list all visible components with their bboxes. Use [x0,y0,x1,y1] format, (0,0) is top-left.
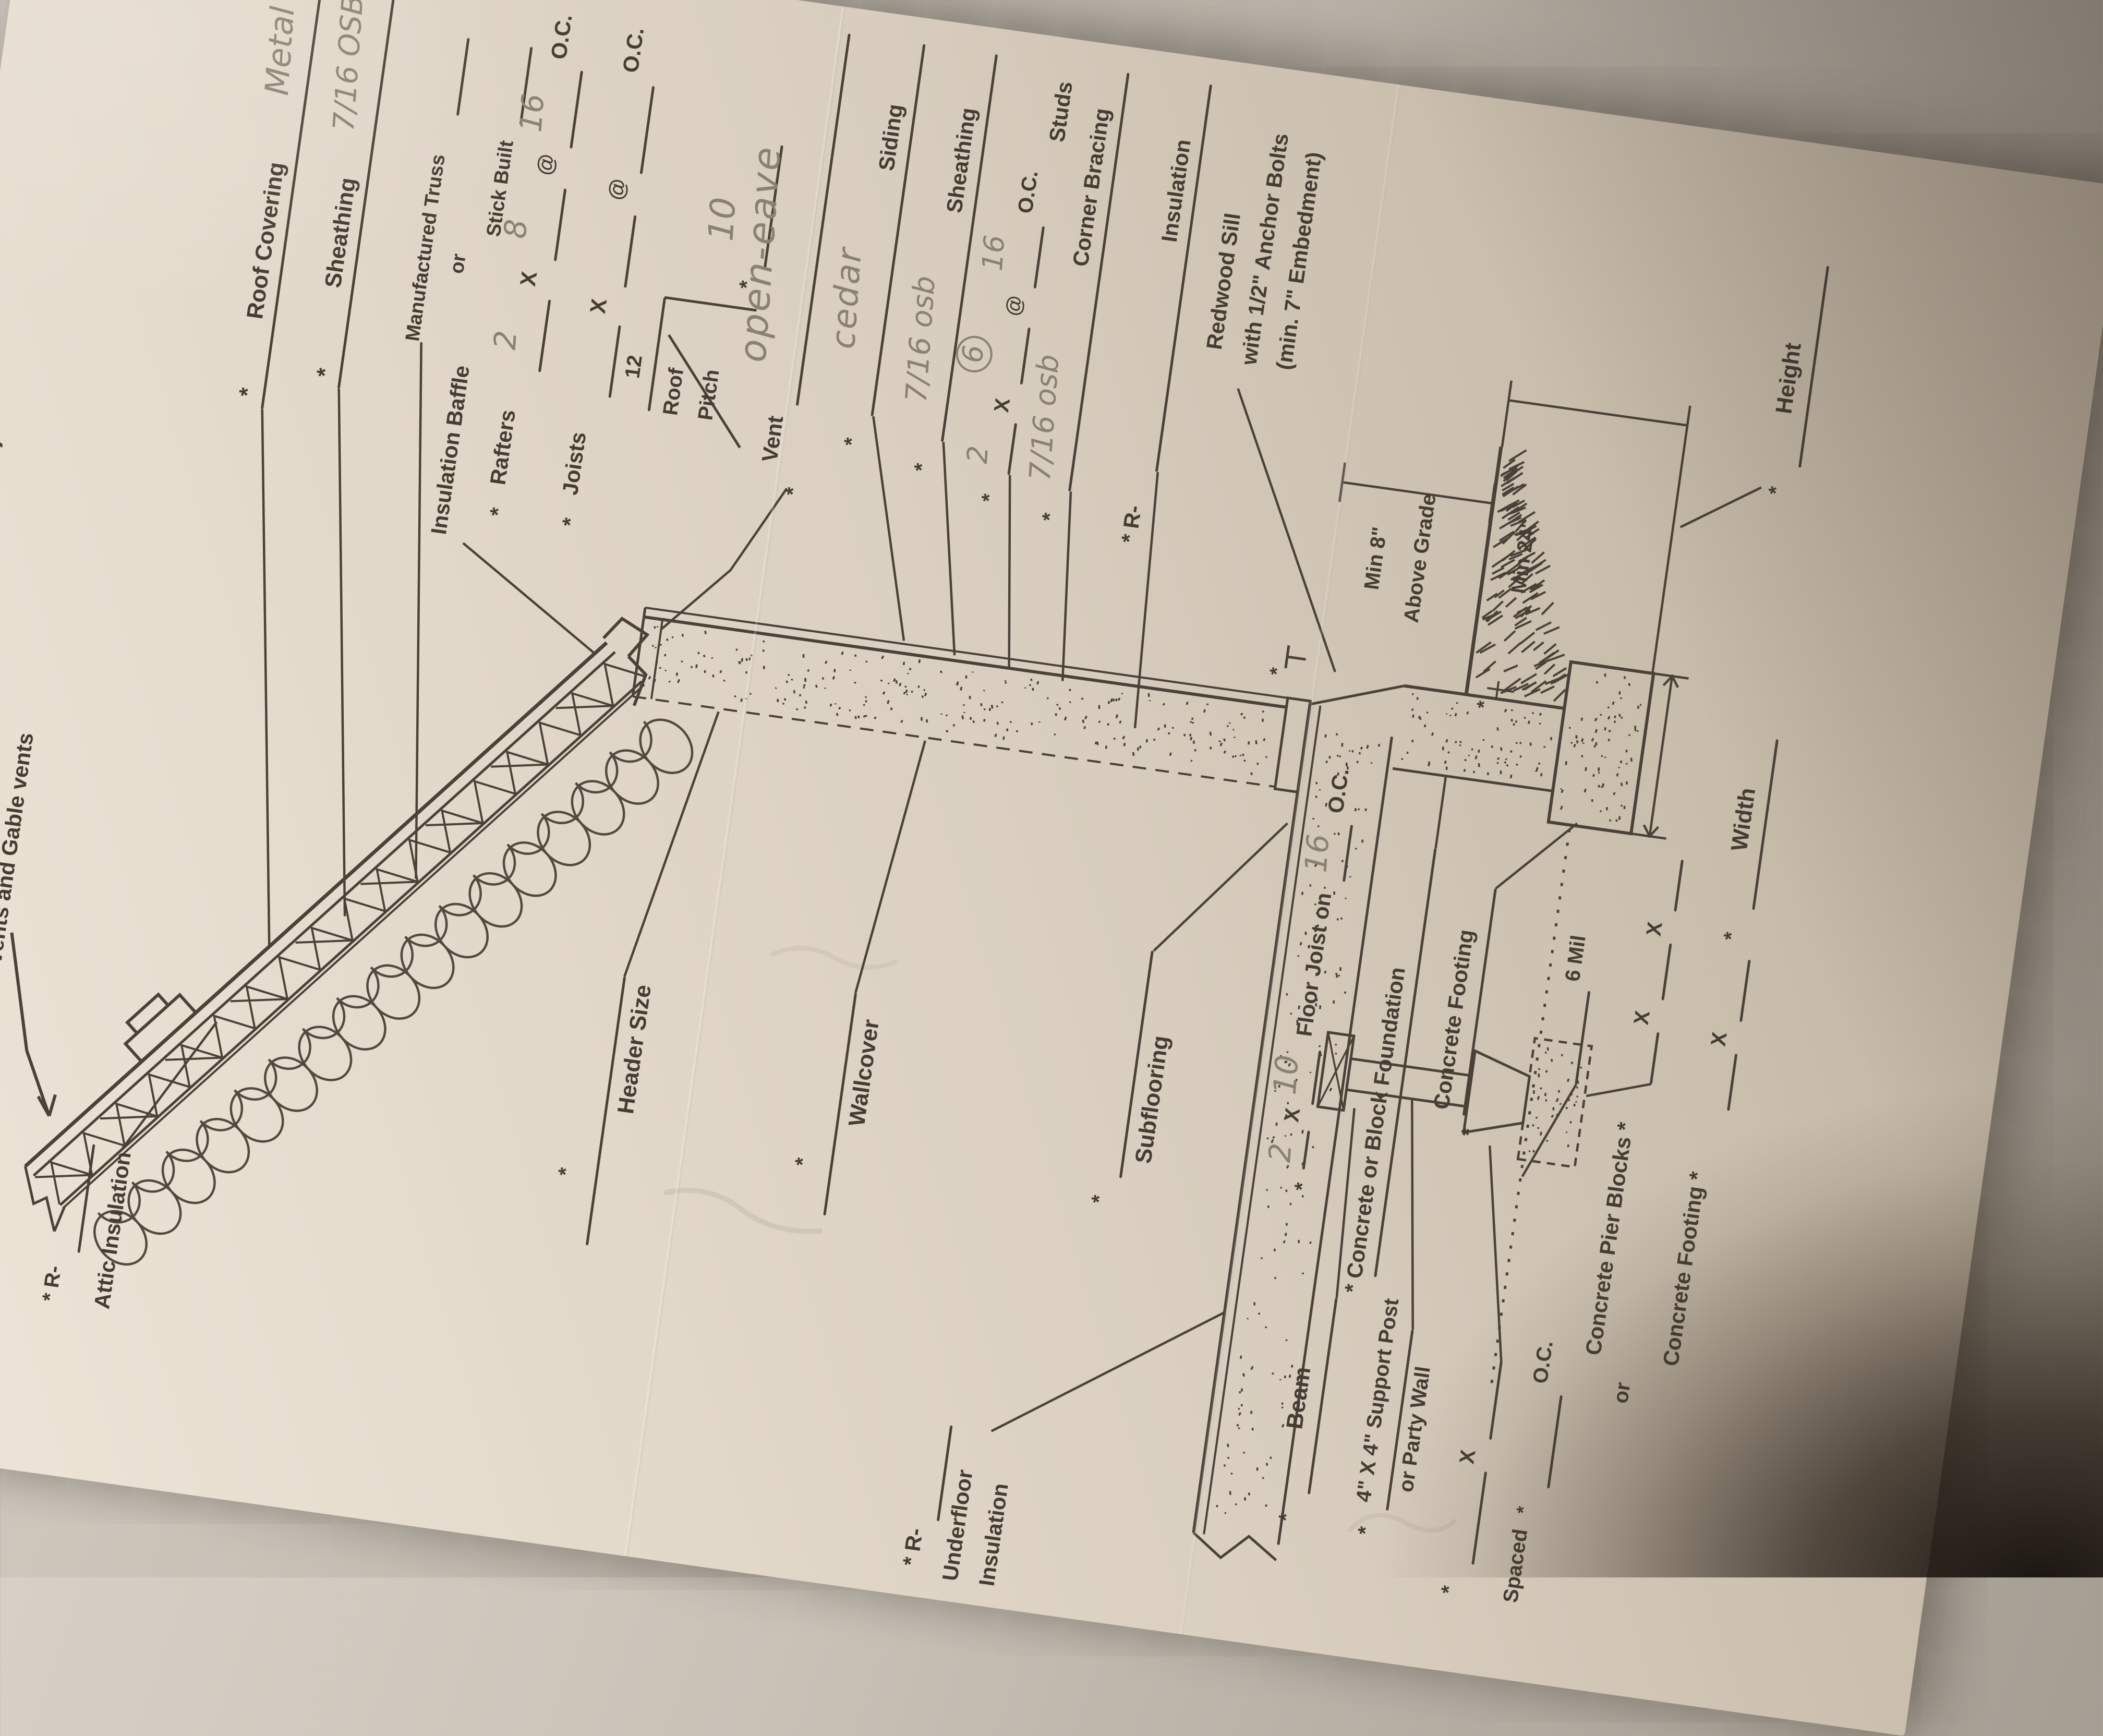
pier-speckle [1525,1046,1583,1158]
truss-or: or [447,252,469,275]
rafters-spacing: 16 [515,93,548,134]
wall-top-plate-2 [651,620,662,700]
pier-blocks-x2: X [1643,921,1665,937]
underfloor-asterisk-r: * R- [900,1527,927,1568]
width-dimension [1631,673,1688,838]
wall-siding-line [645,608,1288,698]
anchor-bolt-mark [1286,645,1308,671]
studs-size2: 6 [954,334,994,373]
studs-oc: O.C. [1015,170,1042,215]
wall-insulation-asterisk-r: * R- [1118,504,1145,545]
joists-at: @ [605,177,629,201]
rafters-x: X [517,270,540,288]
studs-size1: 2 [963,445,993,465]
pier-footing-x: X [1708,1031,1730,1047]
spaced-oc: O.C. [1530,1340,1556,1385]
pier-blocks-x1: X [1631,1009,1653,1026]
attic-insulation-batts [81,706,703,1275]
worksheet-page: * (Fill in the Areas Denoted with Asteri… [0,0,2103,1736]
floor-joist-size2: 10 [1270,1054,1303,1095]
gable-vent-arrow [0,933,77,1116]
photo-of-construction-worksheet: { "title": "* (Fill in the Areas Denoted… [0,0,2103,1577]
rim-joist [1310,673,1405,717]
studs-at: @ [1002,294,1026,317]
joists-x: X [587,297,610,315]
ridge-break [9,1165,72,1231]
rafters-at: @ [534,152,558,176]
wall-sheathing-value: 7/16 osb [902,275,940,403]
leader-lines [101,249,1765,1519]
floor-joist-x: X [1281,1107,1303,1124]
floor-joist-spacing: 16 [1301,833,1334,874]
pitch-rise: 12 [622,354,646,380]
pier-or: or [1610,1381,1634,1405]
siding-value: cedar [827,246,867,350]
rafters-size1: 2 [490,330,521,351]
footing-speckle [1557,670,1645,823]
truss-lattice [35,649,645,1204]
rafters-size2: 8 [500,218,531,239]
spaced-x: X [1456,1449,1479,1465]
section-drawing [0,0,2103,1736]
vapor-barrier-line [1492,820,1571,1383]
studs-x: X [991,397,1013,414]
min24-dimension [1474,381,1690,673]
stem-wall-inner [1393,768,1553,791]
wall-interior-face [633,696,1275,787]
corner-bracing-value: 7/16 osb [1026,354,1064,482]
floor-joist-size1: 2 [1264,1142,1296,1164]
foundation-footing [1549,662,1654,834]
roof-covering-value: Metal [261,5,299,97]
attic-asterisk-r: * R- [39,1264,65,1303]
pitch-value: 10 [704,196,741,242]
studs-spacing: 16 [978,234,1009,272]
